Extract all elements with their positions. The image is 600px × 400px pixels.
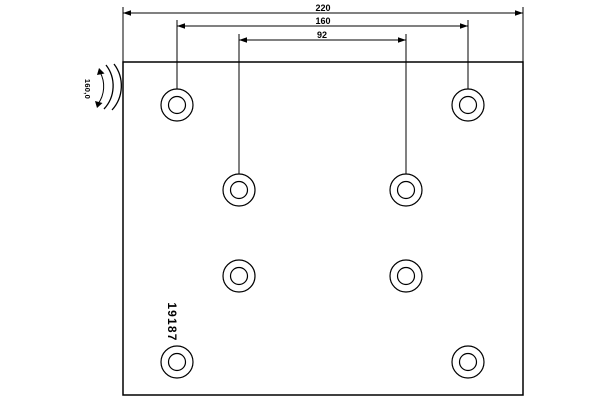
rivet-hole [452, 346, 484, 378]
arrowhead-bottom-icon [95, 101, 103, 108]
hole-inner-circle [398, 268, 415, 285]
hole-outer-circle [161, 89, 193, 121]
hole-inner-circle [398, 182, 415, 199]
hole-outer-circle [223, 174, 255, 206]
hole-outer-circle [452, 346, 484, 378]
dim-value-overall-width: 220 [315, 3, 330, 13]
hole-inner-circle [231, 182, 248, 199]
arrowhead-right-icon [398, 37, 406, 43]
arrowhead-right-icon [460, 23, 468, 29]
radius-arrow-arc-icon [98, 72, 104, 104]
arrowhead-left-icon [123, 10, 131, 16]
hole-outer-circle [223, 260, 255, 292]
rivet-hole [161, 346, 193, 378]
rivet-hole [390, 260, 422, 292]
rivet-hole [390, 174, 422, 206]
dim-outer-hole-spacing: 160 [177, 16, 468, 89]
hole-inner-circle [460, 97, 477, 114]
hole-inner-circle [169, 354, 186, 371]
arrowhead-left-icon [239, 37, 247, 43]
section-arc-inner-icon [104, 65, 113, 109]
arrowhead-left-icon [177, 23, 185, 29]
dim-inner-hole-spacing: 92 [239, 30, 406, 174]
holes-layer [161, 89, 484, 378]
brake-lining-drawing: 220 160 92 160, [0, 0, 600, 400]
rivet-hole [223, 260, 255, 292]
dim-value-inner-hole-spacing: 92 [317, 30, 327, 40]
dim-value-outer-hole-spacing: 160 [315, 16, 330, 26]
hole-inner-circle [169, 97, 186, 114]
rivet-hole [223, 174, 255, 206]
part-number: 19187 [165, 302, 179, 341]
hole-outer-circle [452, 89, 484, 121]
rivet-hole [452, 89, 484, 121]
radius-value: 160,0 [83, 79, 92, 99]
arrowhead-right-icon [515, 10, 523, 16]
hole-outer-circle [161, 346, 193, 378]
arrowhead-top-icon [97, 68, 105, 75]
curvature-symbol: 160,0 [83, 64, 121, 110]
rivet-hole [161, 89, 193, 121]
technical-drawing-page: 220 160 92 160, [0, 0, 600, 400]
hole-inner-circle [460, 354, 477, 371]
hole-outer-circle [390, 174, 422, 206]
hole-outer-circle [390, 260, 422, 292]
hole-inner-circle [231, 268, 248, 285]
